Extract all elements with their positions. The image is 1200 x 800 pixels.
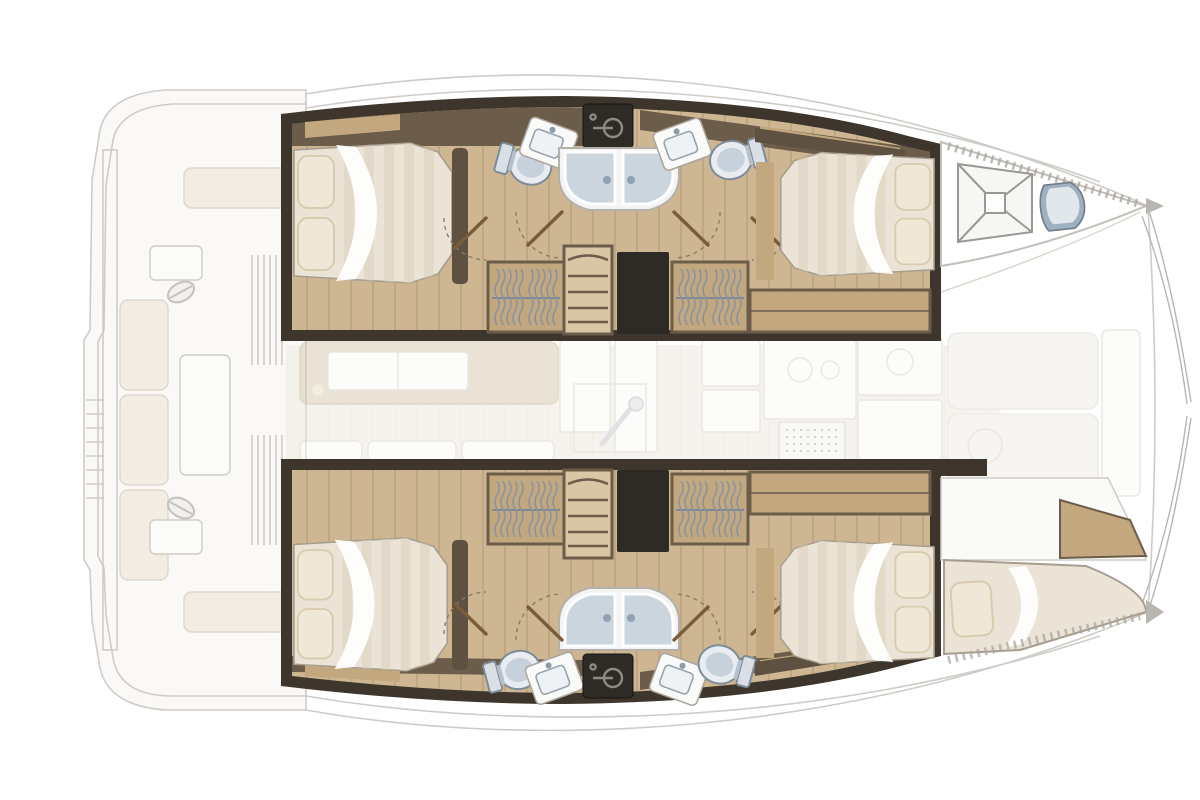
lower-hull: [281, 459, 987, 707]
upper-hull: [281, 96, 941, 341]
cockpit-bench-cushion: [184, 592, 292, 632]
berth-trim: [452, 148, 468, 284]
forward-bench: [1102, 330, 1140, 496]
galley-counter: [764, 337, 856, 419]
galley-fridge: [702, 340, 760, 386]
cockpit-bench-cushion: [184, 168, 292, 208]
dresser: [756, 162, 774, 280]
aft-berth: [294, 140, 452, 286]
bow-head-toilet: [1038, 181, 1087, 231]
seat-cushion: [462, 441, 554, 461]
hatch-logo-box: [583, 654, 633, 698]
bow-tip: [1146, 198, 1164, 214]
shower-grate: [779, 422, 845, 460]
cockpit-bench-cushion: [120, 300, 168, 390]
galley-counter: [858, 337, 942, 395]
bow-tip: [1146, 600, 1164, 624]
nav-cabinet: [615, 340, 657, 452]
cockpit-table: [180, 355, 230, 475]
wardrobe-aft: [488, 262, 564, 332]
companionway-stairs: [564, 246, 612, 334]
wardrobe-fwd: [672, 474, 748, 544]
forward-crossbeam: [1148, 208, 1155, 612]
nav-cabinet: [560, 340, 610, 432]
wardrobe-aft: [488, 474, 564, 544]
wardrobe-fwd: [672, 262, 748, 332]
cockpit-bench-cushion: [120, 395, 168, 485]
forward-berth: [781, 150, 934, 278]
storage-locker: [617, 252, 669, 334]
floorplan-canvas: [0, 0, 1200, 800]
lower-bow: [941, 478, 1164, 660]
aft-berth: [294, 535, 447, 674]
upper-bow: [941, 142, 1164, 292]
galley-counter: [858, 400, 942, 460]
shared-shower: [559, 588, 679, 650]
dresser: [756, 548, 774, 658]
forward-lounge-pad: [948, 333, 1098, 409]
forward-berth: [781, 538, 934, 666]
hatch-logo-box: [583, 104, 633, 148]
storage-locker: [617, 470, 669, 552]
seat-cushion: [300, 441, 362, 461]
galley-fridge: [702, 390, 760, 432]
seat-cushion: [368, 441, 456, 461]
companionway-stairs: [564, 470, 612, 558]
saloon-lamp: [312, 384, 324, 396]
floorplan-page: [0, 0, 1200, 800]
bow-bridle-lines: [1142, 208, 1191, 612]
bow-deck-hatch: [958, 164, 1032, 242]
